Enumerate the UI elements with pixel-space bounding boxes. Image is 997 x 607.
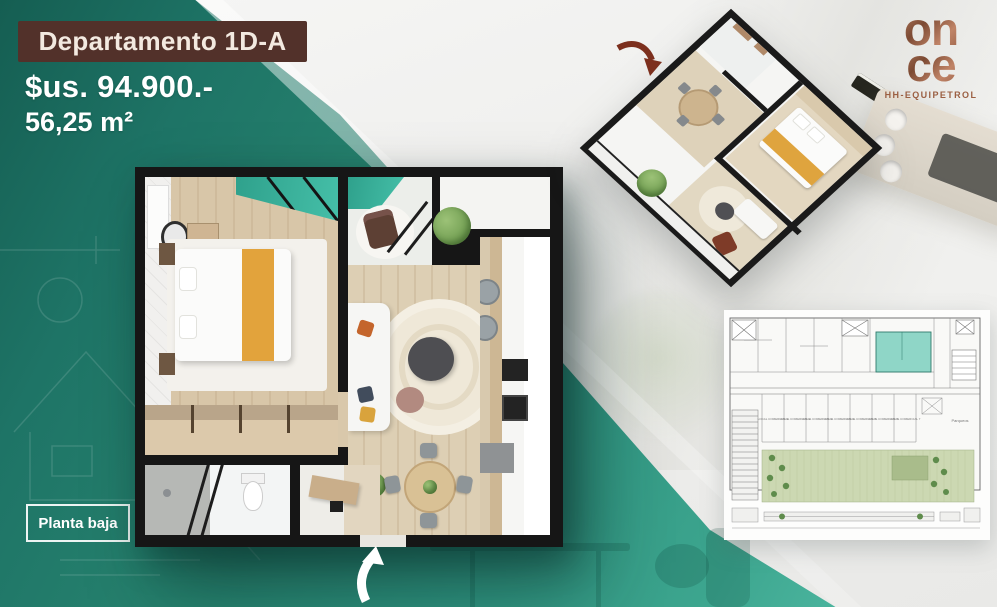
wardrobe-divider xyxy=(191,405,194,433)
garden-feature xyxy=(892,456,928,480)
coffee-table xyxy=(408,337,454,381)
pillow-mustard xyxy=(359,406,376,423)
logo-word-bottom: ce xyxy=(879,48,983,84)
side-table xyxy=(396,387,424,413)
brand-logo: on ce HH-EQUIPETROL xyxy=(879,12,983,100)
shower-drain xyxy=(163,489,171,497)
wardrobe-divider xyxy=(239,405,242,433)
iso-plant xyxy=(631,164,673,203)
pillow-orange xyxy=(356,319,375,338)
pillow-navy xyxy=(357,386,375,404)
entry-speaker xyxy=(330,501,343,512)
bedroom-door-opening xyxy=(338,392,348,447)
apartment-title: Departamento 1D-A xyxy=(39,26,287,57)
floor-level-badge: Planta baja xyxy=(26,504,130,542)
bathroom-area xyxy=(145,465,290,535)
pillow xyxy=(179,267,197,291)
dining-chair xyxy=(420,513,437,528)
potted-plant xyxy=(433,207,471,245)
garden-strip xyxy=(762,450,974,502)
bedroom-window-glass xyxy=(236,177,338,221)
entry-arrow-icon xyxy=(352,545,398,603)
oven xyxy=(502,359,528,381)
window-mullion xyxy=(302,177,338,225)
logo-tagline: HH-EQUIPETROL xyxy=(879,91,983,100)
facade-glass xyxy=(927,133,997,210)
sofa xyxy=(348,303,390,431)
dining-chair xyxy=(456,475,474,494)
locale-label: LOCAL COMERCIAL 7 xyxy=(890,417,921,421)
bed xyxy=(175,249,291,361)
direction-arrow-icon xyxy=(612,38,664,82)
wardrobe xyxy=(145,405,338,455)
refrigerator xyxy=(502,395,528,421)
building-floorplan-sheet: LOCAL COMERCIAL 1 LOCAL COMERCIAL 2 LOCA… xyxy=(724,310,990,540)
facade-porthole xyxy=(882,105,910,133)
highlighted-unit-1DA xyxy=(876,332,931,372)
toilet xyxy=(243,481,263,511)
bedroom-area xyxy=(145,177,338,455)
nightstand xyxy=(159,243,175,265)
facade-porthole xyxy=(877,157,905,185)
title-banner: Departamento 1D-A xyxy=(18,21,307,62)
kitchen-area xyxy=(480,237,550,535)
table-centerpiece xyxy=(423,480,437,494)
iso-pillow xyxy=(806,126,826,144)
bar-stool xyxy=(480,279,500,305)
entry-hall-area xyxy=(300,465,380,535)
building-floorplan: LOCAL COMERCIAL 1 LOCAL COMERCIAL 2 LOCA… xyxy=(724,310,990,540)
wardrobe-divider xyxy=(287,405,290,433)
shower-glass xyxy=(187,465,211,535)
nightstand xyxy=(159,353,175,375)
dining-chair xyxy=(420,443,437,458)
bed-throw xyxy=(242,249,273,361)
price-label: $us. 94.900.- xyxy=(25,69,213,105)
kitchen-base-cabinet xyxy=(480,443,514,473)
floor-level-label: Planta baja xyxy=(38,515,117,532)
dining-chair xyxy=(384,475,402,494)
dining-table xyxy=(404,461,456,513)
terrace-area xyxy=(348,177,432,265)
flyer-canvas: Departamento 1D-A $us. 94.900.- 56,25 m²… xyxy=(0,0,997,607)
iso-pillow xyxy=(792,113,812,131)
window-mullion xyxy=(266,177,305,225)
area-label: 56,25 m² xyxy=(25,107,133,138)
bar-stool xyxy=(480,315,498,341)
parking-label: Parqueos xyxy=(951,418,968,423)
pillow xyxy=(179,315,197,339)
main-floorplan xyxy=(135,167,563,547)
terrace-glass xyxy=(348,177,404,209)
